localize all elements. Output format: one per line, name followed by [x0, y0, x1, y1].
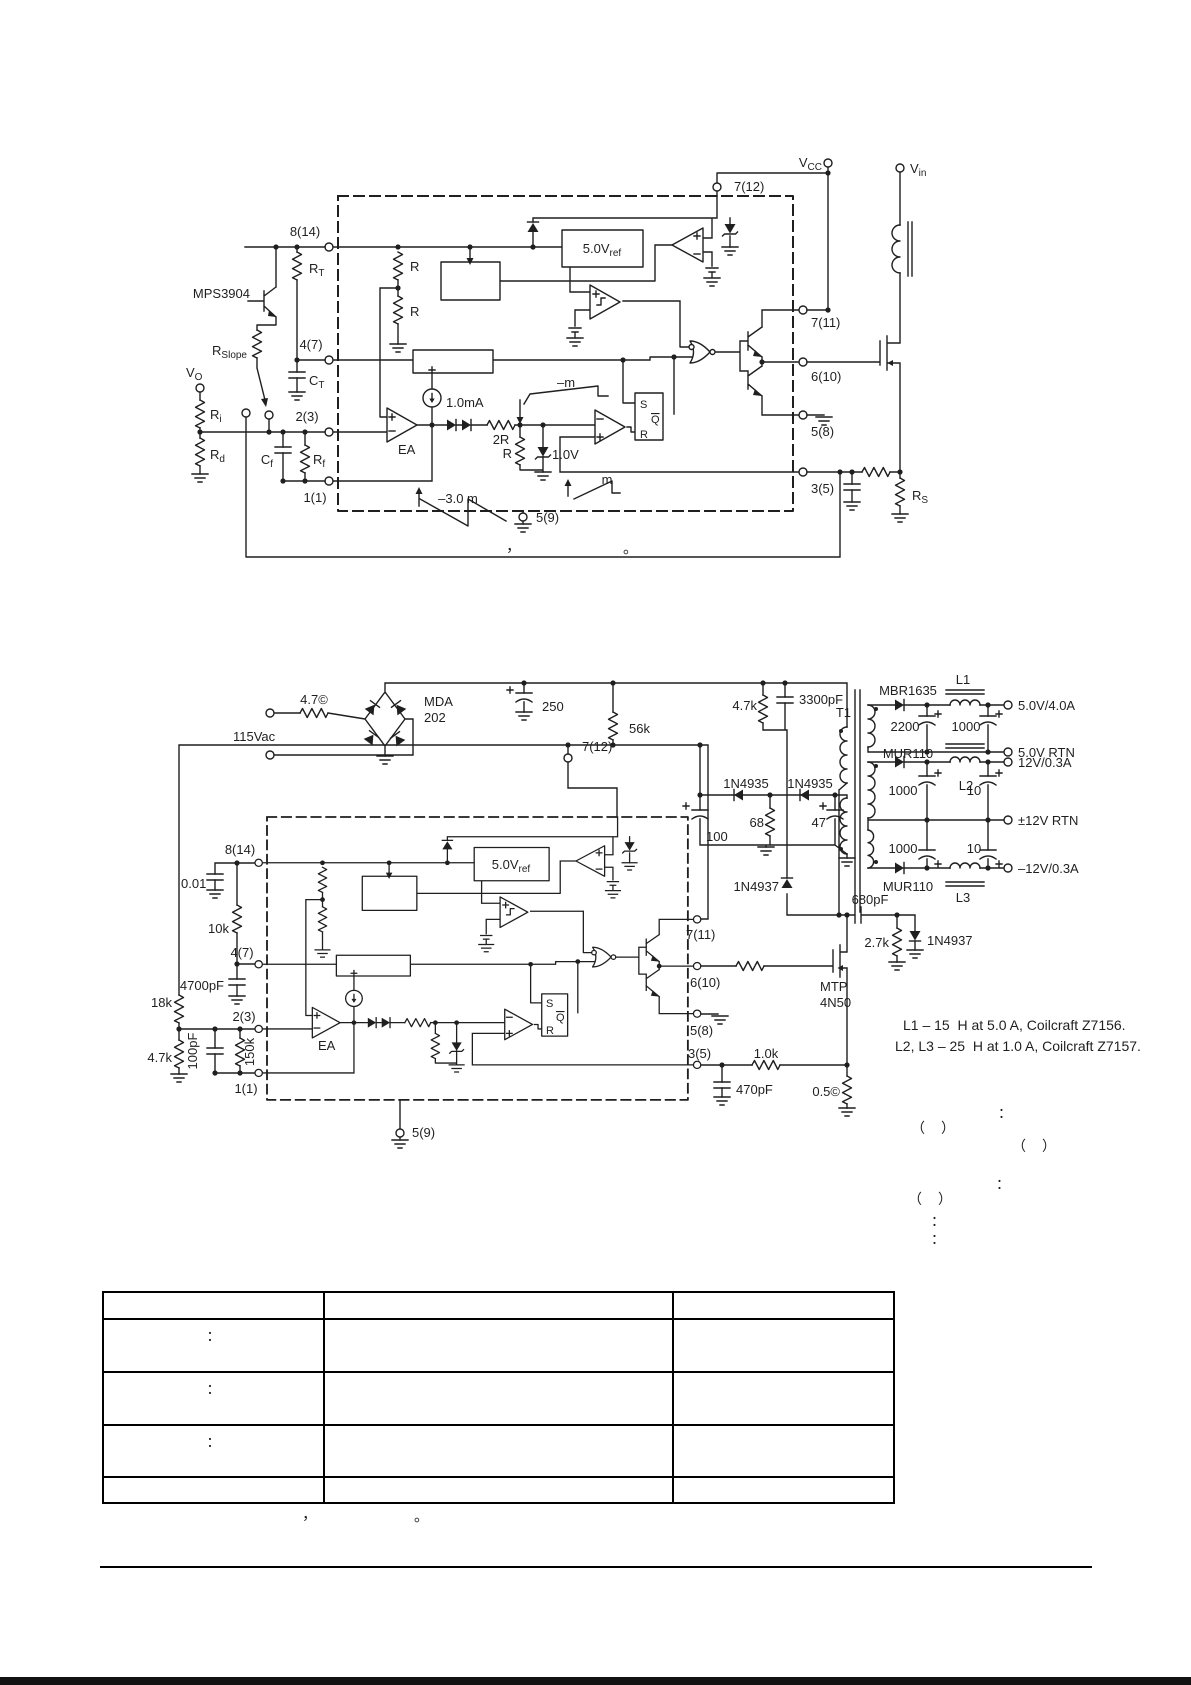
table-caption-period: 。 — [414, 1505, 429, 1526]
table-cell — [103, 1292, 324, 1319]
table-cell — [673, 1425, 894, 1477]
c001-label: 0.01 — [181, 876, 206, 891]
coilcraft-note-2: L2, L3 – 25 H at 1.0 A, Coilcraft Z7157. — [895, 1038, 1141, 1054]
bridge-label-1: MDA — [424, 694, 453, 709]
pin-label-4-7: 4(7) — [299, 337, 322, 352]
table-cell — [673, 1319, 894, 1372]
pin-label-8-14: 8(14) — [225, 842, 255, 857]
clamp-diode-label: 1N4937 — [733, 879, 779, 894]
ea-label: EA — [398, 442, 416, 457]
startup-resistor-label: 56k — [629, 721, 650, 736]
rs-label: RS — [912, 488, 928, 506]
note-colon-3: ： — [931, 1211, 946, 1231]
latch-s-label: S — [546, 998, 553, 1010]
table-cell — [324, 1372, 673, 1425]
bulk-cap-label: 250 — [542, 699, 564, 714]
rd-label: Rd — [210, 447, 225, 465]
c10-n12v-label: 10 — [967, 841, 981, 856]
vo-label: VO — [186, 365, 203, 383]
pin-label-5-8: 5(8) — [690, 1023, 713, 1038]
out-5v-label: 5.0V/4.0A — [1018, 698, 1075, 713]
table-cell — [673, 1292, 894, 1319]
diode-n12v-label: MUR110 — [883, 879, 933, 894]
table-cell: ： — [103, 1425, 324, 1477]
sense-resistor-label: 0.5© — [812, 1084, 840, 1099]
pin-label-3-5: 3(5) — [688, 1046, 711, 1061]
note-colon-2: ： — [996, 1174, 1011, 1194]
table-cell — [673, 1372, 894, 1425]
diode-12v-label: MUR110 — [883, 746, 933, 761]
r68-label: 68 — [750, 815, 764, 830]
note-colon-4: ： — [931, 1229, 946, 1249]
c470-label: 470pF — [736, 1082, 773, 1097]
table-cell: ： — [103, 1319, 324, 1372]
zener-label: 1.0V — [552, 447, 579, 462]
r150k-label: 150k — [242, 1037, 257, 1066]
aux-diode2-label: 1N4935 — [787, 776, 833, 791]
figure1-caption-period: 。 — [623, 537, 638, 558]
clamp-resistor-label: 4.7k — [732, 698, 757, 713]
pin-label-1-1: 1(1) — [234, 1081, 257, 1096]
vac-label: 115Vac — [233, 729, 276, 744]
note-parens-3: （ ） — [908, 1189, 953, 1209]
rt-label: RT — [309, 261, 325, 279]
c100p-label: 100pF — [185, 1033, 200, 1070]
r18k-label: 18k — [151, 995, 172, 1010]
latch-r-label: R — [546, 1025, 554, 1037]
page-bottom-bar — [0, 1677, 1191, 1685]
table-cell — [324, 1319, 673, 1372]
footer-rule — [100, 1566, 1092, 1568]
neg-3m-label: –3.0 m — [438, 491, 478, 506]
pin-label-7-11: 7(11) — [686, 927, 715, 942]
divider-r-top-label: R — [410, 259, 419, 274]
pin-label-3-5: 3(5) — [811, 481, 834, 496]
pin-label-8-14: 8(14) — [290, 224, 320, 239]
fuse-label: 4.7© — [300, 692, 328, 707]
note-parens-2: （ ） — [1012, 1136, 1057, 1156]
c1000-5v-label: 1000 — [952, 719, 981, 734]
r27k-label: 2.7k — [864, 935, 889, 950]
pin-label-5-9: 5(9) — [536, 510, 559, 525]
note-parens-1: （ ） — [911, 1118, 956, 1138]
mosfet-label-2: 4N50 — [820, 995, 851, 1010]
datasheet-page: 8(14) 4(7) 2(3) 1(1) 5(9) 7(12) 7(11) 6(… — [0, 0, 1191, 1685]
gate-diode-label: 1N4937 — [927, 933, 973, 948]
c4700-label: 4700pF — [180, 978, 224, 993]
out-n12v-label: –12V/0.3A — [1018, 861, 1079, 876]
pin-label-7-11: 7(11) — [811, 315, 840, 330]
pin-label-1-1: 1(1) — [303, 490, 326, 505]
r47k-label: 4.7k — [147, 1050, 172, 1065]
transformer-label: T1 — [836, 705, 851, 720]
table-cell: ： — [103, 1372, 324, 1425]
figure1-slope-compensation-circuit: 8(14) 4(7) 2(3) 1(1) 5(9) 7(12) 7(11) 6(… — [186, 155, 928, 557]
l3-label: L3 — [956, 890, 970, 905]
c100-label: 100 — [706, 829, 728, 844]
pin-label-7-12: 7(12) — [734, 179, 764, 194]
c10-12v-label: 10 — [967, 783, 981, 798]
figure1-caption-comma: ， — [506, 535, 521, 556]
divider-r-bottom-label: R — [410, 304, 419, 319]
bridge-label-2: 202 — [424, 710, 446, 725]
rtn-12v-label: ±12V RTN — [1018, 813, 1078, 828]
rslope-label: RSlope — [212, 343, 247, 361]
pin-label-6-10: 6(10) — [811, 369, 841, 384]
r-label: R — [503, 446, 512, 461]
r10k-label: 10k — [208, 921, 229, 936]
table-caption-comma: ， — [302, 1503, 317, 1524]
m-label: m — [602, 472, 613, 487]
table-row — [103, 1477, 894, 1503]
diode-5v-label: MBR1635 — [879, 683, 937, 698]
pin-label-2-3: 2(3) — [295, 409, 318, 424]
latch-q-label: Q — [651, 414, 660, 426]
mps3904-label: MPS3904 — [193, 286, 250, 301]
c1000-12v-label: 1000 — [889, 783, 918, 798]
latch-q-label: Q — [556, 1012, 565, 1024]
table-row: ： — [103, 1319, 894, 1372]
current-source-label: 1.0mA — [446, 395, 484, 410]
c1000-n12v-label: 1000 — [889, 841, 918, 856]
c2200-label: 2200 — [891, 719, 920, 734]
table-cell — [324, 1425, 673, 1477]
rf-label: Rf — [313, 452, 325, 470]
latch-r-label: R — [640, 429, 648, 441]
vin-label: Vin — [910, 161, 926, 179]
pin-label-7-12: 7(12) — [582, 739, 612, 754]
aux-diode1-label: 1N4935 — [723, 776, 769, 791]
pin-label-2-3: 2(3) — [232, 1009, 255, 1024]
figure2-offline-converter-circuit: 115Vac 4.7© MDA 202 250 56k 4.7k 3300pF … — [147, 672, 1079, 1148]
ct-label: CT — [309, 373, 325, 391]
neg-m-label: –m — [557, 375, 575, 390]
table-row: ： — [103, 1425, 894, 1477]
l1-label: L1 — [956, 672, 970, 687]
table-row: ： — [103, 1372, 894, 1425]
pin-label-5-9: 5(9) — [412, 1125, 435, 1140]
coilcraft-note-1: L1 – 15 H at 5.0 A, Coilcraft Z7156. — [903, 1017, 1126, 1033]
table-cell — [324, 1477, 673, 1503]
r1k-label: 1.0k — [754, 1046, 779, 1061]
cf-label: Cf — [261, 452, 273, 470]
table-cell — [103, 1477, 324, 1503]
table-cell — [324, 1292, 673, 1319]
latch-s-label: S — [640, 399, 647, 411]
vcc-label: VCC — [799, 155, 822, 173]
note-colon-1: ： — [998, 1103, 1013, 1123]
out-12v-label: 12V/0.3A — [1018, 755, 1072, 770]
pin-label-5-8: 5(8) — [811, 424, 834, 439]
ea-label: EA — [318, 1038, 336, 1053]
c680-label: 680pF — [852, 892, 889, 907]
mosfet-label-1: MTP — [820, 979, 847, 994]
bottom-table: ： ： ： — [102, 1291, 895, 1504]
ri-label: Ri — [210, 407, 222, 425]
r2r-label: 2R — [493, 432, 510, 447]
pin-label-4-7: 4(7) — [230, 945, 253, 960]
table-cell — [673, 1477, 894, 1503]
table-header-row — [103, 1292, 894, 1319]
pin-label-6-10: 6(10) — [690, 975, 720, 990]
c47-label: 47 — [812, 815, 826, 830]
